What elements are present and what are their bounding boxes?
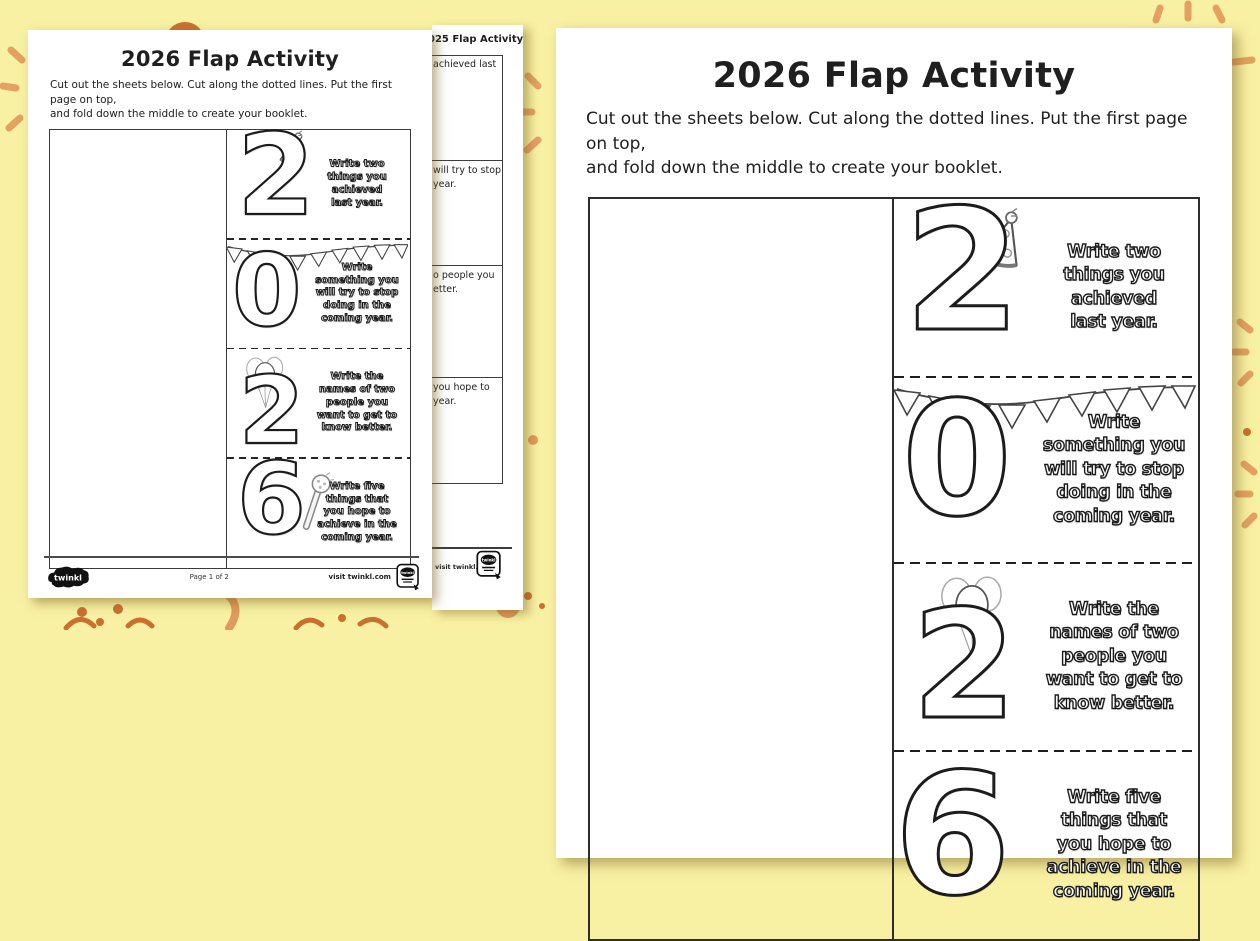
flap-text-line: people you: [305, 397, 409, 410]
flap-text-line: something you: [305, 275, 409, 288]
flap-text-line: last year.: [1030, 311, 1198, 335]
instructions: Cut out the sheets below. Cut along the …: [50, 78, 410, 122]
flap-text-line: Write two: [305, 159, 409, 172]
back-table-border: [432, 160, 503, 161]
flap-row-know-better: 2 Write the names of two people you want…: [894, 563, 1198, 751]
flap-numeral: 2: [912, 591, 1016, 741]
flap-table: 2 Write two things you achieved last yea…: [49, 129, 411, 569]
flap-row-stop-doing: 0 Write something you will try to stop d…: [894, 377, 1198, 563]
flap-text-line: coming year.: [305, 313, 409, 326]
twinkl-badge: twinkl: [396, 563, 420, 591]
flap-row-achieved: 2 Write two things you achieved last yea…: [227, 130, 410, 240]
flap-text-line: things you: [305, 171, 409, 184]
flap-text-line: names of two: [305, 384, 409, 397]
back-table-border: [502, 55, 503, 483]
flap-text-line: Write two: [1030, 241, 1198, 265]
flap-text-line: coming year.: [1030, 880, 1198, 904]
flap-text-line: doing in the: [305, 300, 409, 313]
flap-text: Write the names of two people you want t…: [1030, 598, 1198, 716]
back-page-title-fragment: 025 Flap Activity: [432, 34, 523, 45]
worksheet-page-1-zoomed: 2026 Flap Activity Cut out the sheets be…: [556, 28, 1232, 858]
flap-text-line: Write the: [1030, 598, 1198, 622]
svg-text:twinkl: twinkl: [401, 571, 414, 575]
flap-text: Write two things you achieved last year.: [305, 159, 409, 210]
svg-text:twinkl: twinkl: [54, 573, 82, 582]
flap-text-line: know better.: [305, 422, 409, 435]
flap-text: Write five things that you hope to achie…: [305, 481, 409, 545]
flap-text-line: things that: [1030, 809, 1198, 833]
back-page-fragment-line: will try to stop: [433, 165, 501, 176]
flap-row-stop-doing: 0 Write something you will try to stop d…: [227, 239, 410, 349]
twinkl-badge: twinkl: [476, 550, 502, 580]
flap-row-achieve-coming-year: 6 Write five things that you hope to ach…: [227, 458, 410, 568]
flap-text-line: coming year.: [305, 532, 409, 545]
flap-text-line: Write the: [305, 371, 409, 384]
instructions-line: Cut out the sheets below. Cut along the …: [586, 107, 1202, 156]
back-table-border: [432, 377, 503, 378]
worksheet-page-1: 2026 Flap Activity Cut out the sheets be…: [28, 30, 432, 598]
visit-link-text: visit twinkl.com: [329, 573, 391, 581]
back-page-fragment-line: o people you: [433, 270, 495, 281]
flap-numeral: 6: [894, 751, 1011, 919]
flap-column: 2 Write two things you achieved last yea…: [894, 199, 1198, 939]
svg-text:twinkl: twinkl: [482, 558, 496, 563]
page-indicator: Page 1 of 2: [190, 573, 229, 581]
flap-text-line: Write five: [305, 481, 409, 494]
flap-text-line: Write: [1030, 411, 1198, 435]
flap-numeral: 0: [232, 241, 302, 341]
flap-numeral: 0: [902, 381, 1012, 539]
flap-text-line: achieve in the: [1030, 856, 1198, 880]
flap-text-line: achieve in the: [305, 519, 409, 532]
instructions-line: and fold down the middle to create your …: [50, 107, 410, 122]
flap-numeral: 2: [237, 120, 315, 232]
flap-row-achieve-coming-year: 6 Write five things that you hope to ach…: [894, 751, 1198, 939]
flap-column: 2 Write two things you achieved last yea…: [227, 130, 410, 568]
flap-text-line: want to get to: [305, 410, 409, 423]
instructions-line: Cut out the sheets below. Cut along the …: [50, 78, 410, 107]
flap-text-line: will try to stop: [305, 287, 409, 300]
flap-text: Write something you will try to stop doi…: [1030, 411, 1198, 529]
back-table-border: [432, 55, 503, 56]
flap-text: Write the names of two people you want t…: [305, 371, 409, 435]
flap-text-line: people you: [1030, 645, 1198, 669]
flap-text-line: achieved: [305, 184, 409, 197]
blank-writing-column: [50, 130, 227, 568]
page-title: 2026 Flap Activity: [556, 56, 1232, 96]
flap-text-line: last year.: [305, 197, 409, 210]
flap-text: Write something you will try to stop doi…: [305, 262, 409, 326]
back-page-fragment-line: you hope to: [433, 382, 490, 393]
back-page-sheet: 025 Flap Activity achieved last will try…: [432, 25, 523, 610]
page-title: 2026 Flap Activity: [28, 47, 432, 71]
flap-text-line: you hope to: [305, 506, 409, 519]
flap-numeral: 2: [904, 187, 1021, 355]
flap-text-line: know better.: [1030, 692, 1198, 716]
footer-divider: [44, 556, 419, 558]
flap-text-line: achieved: [1030, 288, 1198, 312]
back-page-fragment-line: year.: [433, 179, 456, 190]
flap-text-line: you hope to: [1030, 833, 1198, 857]
back-page-fragment-line: year.: [433, 396, 456, 407]
page-footer: twinkl Page 1 of 2 visit twinkl.com twin…: [46, 563, 420, 591]
flap-text-line: Write: [305, 262, 409, 275]
flap-text-line: doing in the: [1030, 481, 1198, 505]
twinkl-logo: twinkl: [46, 564, 90, 590]
flap-text-line: want to get to: [1030, 668, 1198, 692]
flap-row-achieved: 2 Write two things you achieved last yea…: [894, 199, 1198, 377]
flap-text-line: things that: [305, 494, 409, 507]
flap-text: Write two things you achieved last year.: [1030, 241, 1198, 335]
flap-numeral: 6: [237, 450, 306, 549]
flap-text-line: something you: [1030, 434, 1198, 458]
back-table-border: [432, 265, 503, 266]
footer-divider: [432, 547, 512, 549]
instructions: Cut out the sheets below. Cut along the …: [586, 107, 1202, 181]
flap-text-line: Write five: [1030, 786, 1198, 810]
flap-text-line: names of two: [1030, 621, 1198, 645]
back-page-fragment-line: achieved last: [433, 59, 496, 70]
flap-text: Write five things that you hope to achie…: [1030, 786, 1198, 904]
blank-writing-column: [590, 199, 894, 939]
flap-text-line: coming year.: [1030, 505, 1198, 529]
flap-table: 2 Write two things you achieved last yea…: [588, 197, 1200, 941]
instructions-line: and fold down the middle to create your …: [586, 156, 1202, 181]
flap-text-line: will try to stop: [1030, 458, 1198, 482]
flap-text-line: things you: [1030, 264, 1198, 288]
back-table-border: [432, 483, 503, 484]
back-page-fragment-line: etter.: [433, 284, 458, 295]
